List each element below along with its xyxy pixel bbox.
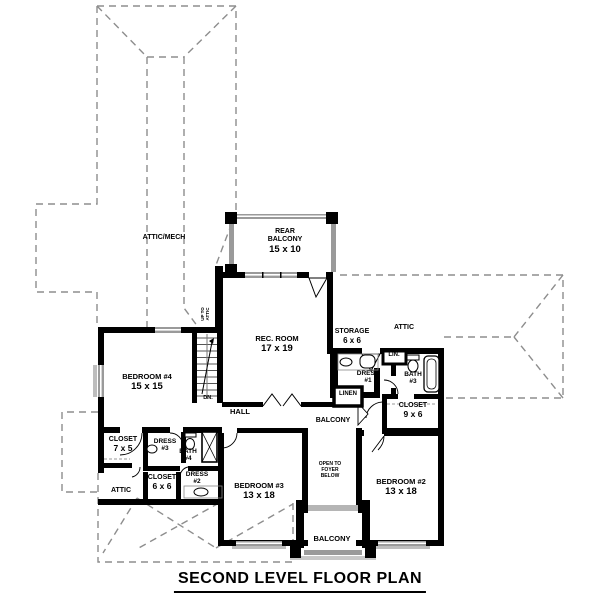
toilet-icon xyxy=(185,433,196,437)
room-label-balcony-front: BALCONY xyxy=(313,535,350,544)
room-label-rear-balcony: REAR BALCONY 15 x 10 xyxy=(268,228,303,256)
floor-plan-drawing xyxy=(0,0,600,600)
room-label-attic-mech: ATTIC/MECH xyxy=(143,234,186,242)
floor-plan: ATTIC/MECH REAR BALCONY 15 x 10 REC. ROO… xyxy=(0,0,600,600)
room-label-bedroom-4: BEDROOM #4 15 x 15 xyxy=(122,373,172,393)
room-label-dress-3: DRESS #3 xyxy=(154,438,176,453)
room-label-bath-4: BATH #4 xyxy=(179,448,197,463)
toilet-icon xyxy=(407,355,419,360)
room-label-lin: LIN. xyxy=(388,352,399,359)
room-label-hall: HALL xyxy=(230,408,250,417)
sink-icon xyxy=(194,488,208,496)
room-label-bedroom-2: BEDROOM #2 13 x 18 xyxy=(376,478,426,498)
room-label-closet-9x6: CLOSET 9 x 6 xyxy=(399,402,427,420)
roof-outline xyxy=(36,6,563,562)
room-label-dress-2: DRESS #2 xyxy=(186,471,208,486)
room-label-closet-6x6: CLOSET 6 x 6 xyxy=(148,474,176,492)
room-label-balcony-interior: BALCONY xyxy=(316,417,351,425)
room-label-open-to-foyer: OPEN TO FOYER BELOW xyxy=(319,462,341,479)
stairs-up-to-attic-label: UP TO ATTIC xyxy=(200,307,210,321)
room-label-bedroom-3: BEDROOM #3 13 x 18 xyxy=(234,482,284,502)
room-label-closet-7x5: CLOSET 7 x 5 xyxy=(109,436,137,454)
room-label-storage: STORAGE 6 x 6 xyxy=(335,328,370,345)
stairs xyxy=(197,334,217,399)
room-label-dress-1: DRESS #1 xyxy=(357,370,379,385)
room-label-attic-right: ATTIC xyxy=(394,324,414,332)
room-label-linen: LINEN xyxy=(339,391,357,398)
page-title: SECOND LEVEL FLOOR PLAN xyxy=(174,570,426,593)
room-label-bath-3: BATH #3 xyxy=(404,371,422,386)
sink-icon xyxy=(340,358,352,366)
stairs-dn-label: DN. xyxy=(203,395,212,401)
front-balcony-railing xyxy=(304,550,362,555)
walls xyxy=(98,266,444,558)
room-label-rec-room: REC. ROOM 17 x 19 xyxy=(255,335,298,355)
room-label-attic-left: ATTIC xyxy=(111,487,131,495)
